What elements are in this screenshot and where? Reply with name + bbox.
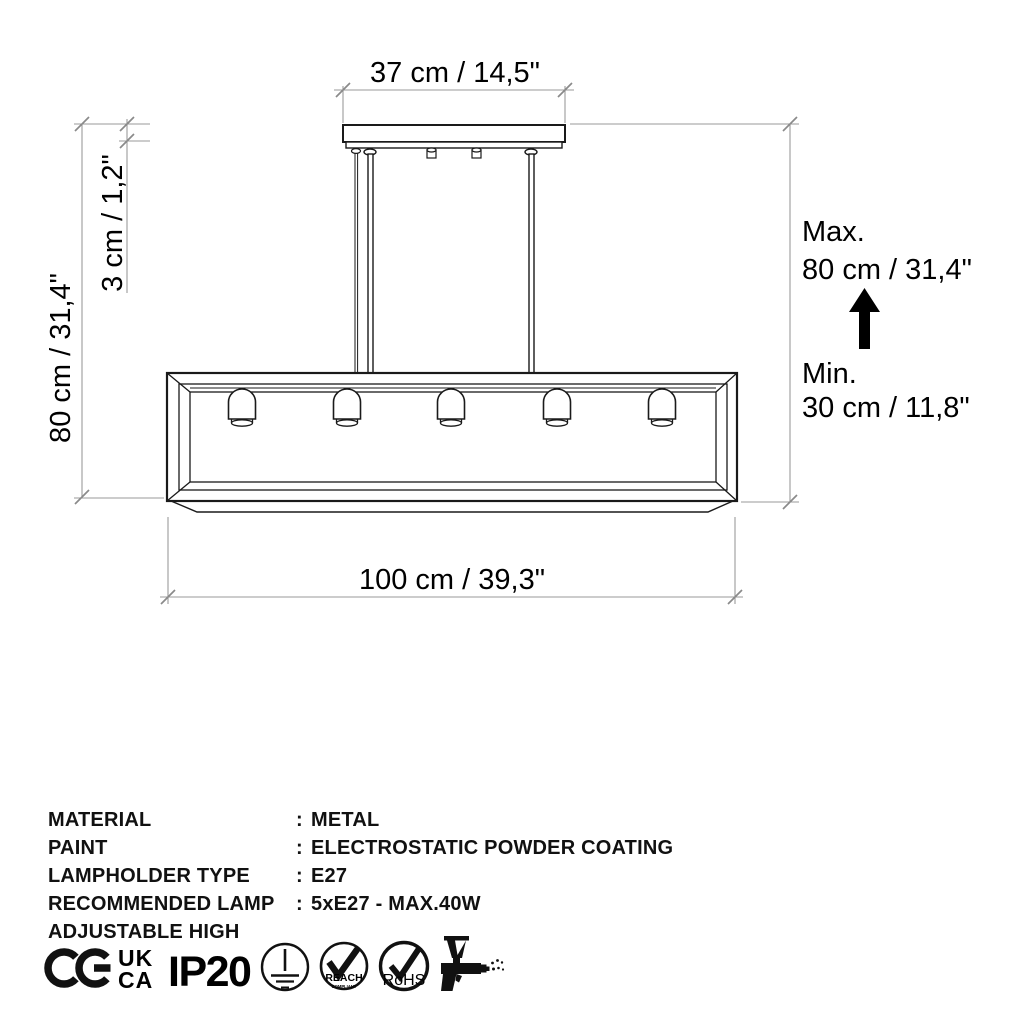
ceiling-canopy [343, 125, 565, 142]
spec-separator: : [296, 890, 311, 918]
spec-value: ELECTROSTATIC POWDER COATING [311, 834, 748, 862]
min-label: Min. [802, 358, 857, 390]
spec-separator: : [296, 806, 311, 834]
spec-row: RECOMMENDED LAMP:5xE27 - MAX.40W [48, 890, 748, 918]
dim-label-bottom-width: 100 cm / 39,3" [359, 564, 545, 596]
suspension-rod-left [368, 154, 373, 373]
cable-gland [352, 149, 361, 154]
spec-label: RECOMMENDED LAMP [48, 890, 296, 918]
spray-paint-icon [441, 936, 504, 991]
dim-label-total-height: 80 cm / 31,4" [45, 273, 77, 443]
power-cable [355, 153, 358, 373]
rohs-badge-icon: RoHS [381, 943, 428, 990]
dim-label-canopy-thickness: 3 cm / 1,2" [97, 154, 129, 292]
ukca-mark-icon: UK CA [118, 945, 153, 993]
spec-value: METAL [311, 806, 748, 834]
ip-rating-label: IP20 [168, 948, 251, 996]
specifications-list: MATERIAL:METAL PAINT:ELECTROSTATIC POWDE… [48, 806, 748, 946]
mounting-stud [427, 148, 436, 158]
ce-mark-icon [48, 952, 110, 984]
min-value: 30 cm / 11,8" [802, 392, 970, 424]
spec-label: MATERIAL [48, 806, 296, 834]
spec-row: MATERIAL:METAL [48, 806, 748, 834]
certification-icons-row: UK CA IP20 REACH COMPLIANT RoHS [40, 928, 510, 1012]
lamp-technical-drawing: 37 cm / 14,5" 80 cm / 31,4" 3 cm / 1,2" … [0, 0, 1024, 660]
product-dimension-sheet: 37 cm / 14,5" 80 cm / 31,4" 3 cm / 1,2" … [0, 0, 1024, 1024]
dim-label-top-width: 37 cm / 14,5" [370, 57, 540, 89]
spec-row: LAMPHOLDER TYPE:E27 [48, 862, 748, 890]
spec-value: E27 [311, 862, 748, 890]
canopy-lip [346, 142, 562, 148]
ukca-bottom-text: CA [118, 967, 153, 993]
spec-separator: : [296, 862, 311, 890]
max-value: 80 cm / 31,4" [802, 254, 972, 286]
frame-bottom-bevel [171, 501, 733, 512]
spec-label: LAMPHOLDER TYPE [48, 862, 296, 890]
adjustable-height-annotation: Max. 80 cm / 31,4" Min. 30 cm / 11,8" [802, 216, 972, 424]
mounting-stud [472, 148, 481, 158]
spec-row: PAINT:ELECTROSTATIC POWDER COATING [48, 834, 748, 862]
reach-label: REACH [325, 972, 362, 984]
dimension-ticks [75, 83, 797, 604]
earth-ground-icon [262, 944, 308, 990]
reach-badge-icon: REACH COMPLIANT [321, 943, 367, 989]
reach-compliant-label: COMPLIANT [332, 984, 357, 989]
rohs-label: RoHS [383, 972, 426, 989]
max-label: Max. [802, 216, 865, 248]
dimension-lines [74, 86, 799, 604]
spec-value: 5xE27 - MAX.40W [311, 890, 748, 918]
suspension-rod-right [529, 154, 534, 373]
lamp-drawing [167, 125, 737, 512]
spec-label: PAINT [48, 834, 296, 862]
arrow-up-icon [849, 288, 880, 349]
spec-separator: : [296, 834, 311, 862]
